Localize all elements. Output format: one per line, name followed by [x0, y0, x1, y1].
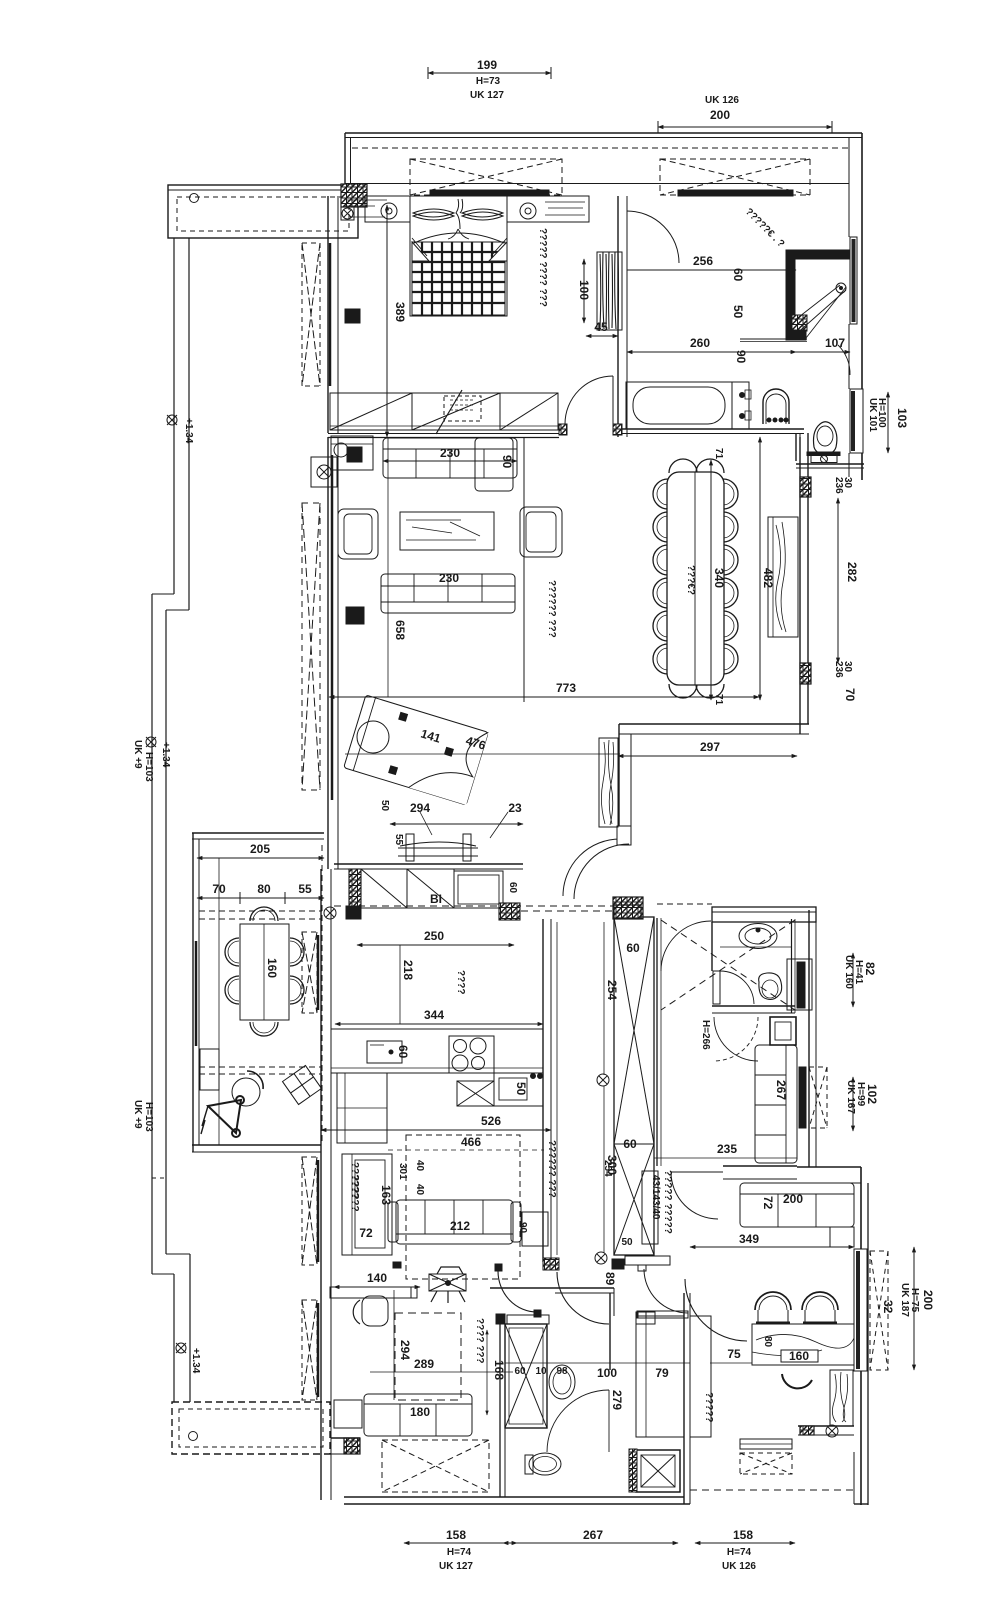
svg-text:160: 160 [265, 958, 279, 978]
svg-text:H=266: H=266 [700, 1020, 711, 1050]
svg-text:349: 349 [739, 1232, 759, 1246]
svg-text:294: 294 [398, 1340, 412, 1360]
svg-text:300: 300 [605, 1155, 619, 1175]
svg-text:72: 72 [761, 1196, 775, 1210]
svg-text:???? ???: ???? ??? [474, 1318, 485, 1364]
svg-text:71: 71 [713, 448, 724, 460]
svg-text:UK 126: UK 126 [722, 1561, 756, 1572]
svg-text:90: 90 [517, 1222, 528, 1234]
svg-text:UK 167: UK 167 [845, 1080, 856, 1114]
svg-text:658: 658 [393, 620, 407, 640]
svg-text:UK 127: UK 127 [470, 90, 504, 101]
svg-text:205: 205 [250, 842, 270, 856]
svg-text:10: 10 [535, 1366, 547, 1377]
svg-text:90: 90 [500, 455, 514, 469]
svg-text:+1.34: +1.34 [183, 418, 194, 444]
svg-text:82: 82 [863, 962, 877, 976]
svg-text:389: 389 [393, 302, 407, 322]
svg-text:180: 180 [410, 1405, 430, 1419]
svg-text:301: 301 [397, 1163, 408, 1180]
svg-text:526: 526 [481, 1114, 501, 1128]
svg-text:UK 126: UK 126 [705, 95, 739, 106]
svg-text:100: 100 [597, 1366, 617, 1380]
svg-text:267: 267 [583, 1528, 603, 1542]
svg-text:279: 279 [610, 1390, 624, 1410]
svg-text:43/143/40: 43/143/40 [650, 1175, 661, 1220]
svg-text:45: 45 [594, 320, 608, 334]
svg-text:?????: ????? [703, 1392, 714, 1423]
svg-text:80: 80 [762, 1336, 773, 1348]
svg-text:H=73: H=73 [476, 76, 501, 87]
svg-text:UK 187: UK 187 [899, 1283, 910, 1317]
svg-text:235: 235 [717, 1142, 737, 1156]
svg-text:158: 158 [446, 1528, 466, 1542]
svg-text:60: 60 [514, 1366, 526, 1377]
svg-text:200: 200 [710, 108, 730, 122]
svg-text:102: 102 [865, 1084, 879, 1104]
svg-text:482: 482 [761, 568, 775, 588]
svg-text:H=74: H=74 [447, 1547, 472, 1558]
svg-text:50: 50 [731, 305, 745, 319]
svg-text:282: 282 [845, 562, 859, 582]
svg-text:32: 32 [881, 1300, 895, 1314]
svg-text:UK 101: UK 101 [867, 398, 878, 432]
svg-text:100: 100 [577, 280, 591, 300]
svg-text:????: ???? [455, 970, 466, 994]
svg-text:40: 40 [414, 1160, 425, 1172]
svg-text:60: 60 [507, 882, 518, 894]
svg-text:254: 254 [605, 980, 619, 1000]
svg-text:230: 230 [439, 571, 459, 585]
svg-text:89: 89 [603, 1272, 617, 1286]
svg-text:80: 80 [257, 882, 271, 896]
svg-text:70: 70 [212, 882, 226, 896]
svg-text:200: 200 [921, 1290, 935, 1310]
svg-text:?????? ???: ?????? ??? [546, 580, 557, 638]
svg-text:UK +9: UK +9 [132, 1100, 143, 1129]
svg-text:773: 773 [556, 681, 576, 695]
svg-text:55: 55 [393, 834, 404, 846]
svg-text:297: 297 [700, 740, 720, 754]
svg-text:H=74: H=74 [727, 1547, 752, 1558]
svg-text:256: 256 [693, 254, 713, 268]
svg-text:????? ?????: ????? ????? [662, 1170, 673, 1234]
svg-text:160: 160 [789, 1349, 809, 1363]
svg-text:60: 60 [731, 268, 745, 282]
svg-text:79: 79 [655, 1366, 669, 1380]
svg-text:UK 160: UK 160 [843, 955, 854, 989]
svg-text:158: 158 [733, 1528, 753, 1542]
svg-text:?????? ???: ?????? ??? [546, 1140, 557, 1198]
svg-text:UK +9: UK +9 [132, 740, 143, 769]
svg-text:218: 218 [401, 960, 415, 980]
svg-text:466: 466 [461, 1135, 481, 1149]
svg-text:72: 72 [359, 1226, 373, 1240]
svg-text:236: 236 [833, 661, 844, 678]
svg-text:163: 163 [379, 1185, 393, 1205]
svg-text:236: 236 [833, 477, 844, 494]
svg-text:????? ???? ???: ????? ???? ??? [537, 228, 548, 307]
svg-text:50: 50 [621, 1237, 633, 1248]
svg-text:60: 60 [396, 1045, 410, 1059]
svg-text:H=103: H=103 [143, 752, 154, 782]
svg-text:260: 260 [690, 336, 710, 350]
svg-text:50: 50 [514, 1082, 528, 1096]
svg-text:60: 60 [623, 1137, 637, 1151]
svg-text:98: 98 [556, 1366, 568, 1377]
svg-text:70: 70 [843, 688, 857, 702]
svg-text:75: 75 [727, 1347, 741, 1361]
svg-text:71: 71 [713, 694, 724, 706]
svg-text:289: 289 [414, 1357, 434, 1371]
svg-text:230: 230 [440, 446, 460, 460]
svg-text:267: 267 [774, 1080, 788, 1100]
svg-text:107: 107 [825, 336, 845, 350]
svg-text:212: 212 [450, 1219, 470, 1233]
svg-text:103: 103 [895, 408, 909, 428]
svg-text:+1.34: +1.34 [160, 742, 171, 768]
svg-text:140: 140 [367, 1271, 387, 1285]
svg-text:168: 168 [492, 1360, 506, 1380]
svg-text:+1.34: +1.34 [190, 1348, 201, 1374]
svg-text:90: 90 [734, 350, 748, 364]
svg-text:60: 60 [626, 941, 640, 955]
svg-text:55: 55 [298, 882, 312, 896]
svg-text:UK 127: UK 127 [439, 1561, 473, 1572]
svg-text:50: 50 [379, 800, 390, 812]
svg-text:???€?: ???€? [685, 565, 696, 595]
svg-text:199: 199 [477, 58, 497, 72]
svg-text:BI: BI [430, 892, 442, 906]
svg-text:200: 200 [783, 1192, 803, 1206]
svg-text:??????: ?????? [349, 1175, 360, 1212]
svg-text:340: 340 [712, 568, 726, 588]
svg-text:40: 40 [414, 1184, 425, 1196]
svg-text:H=103: H=103 [143, 1102, 154, 1132]
svg-text:23: 23 [508, 801, 522, 815]
svg-text:250: 250 [424, 929, 444, 943]
svg-text:344: 344 [424, 1008, 444, 1022]
